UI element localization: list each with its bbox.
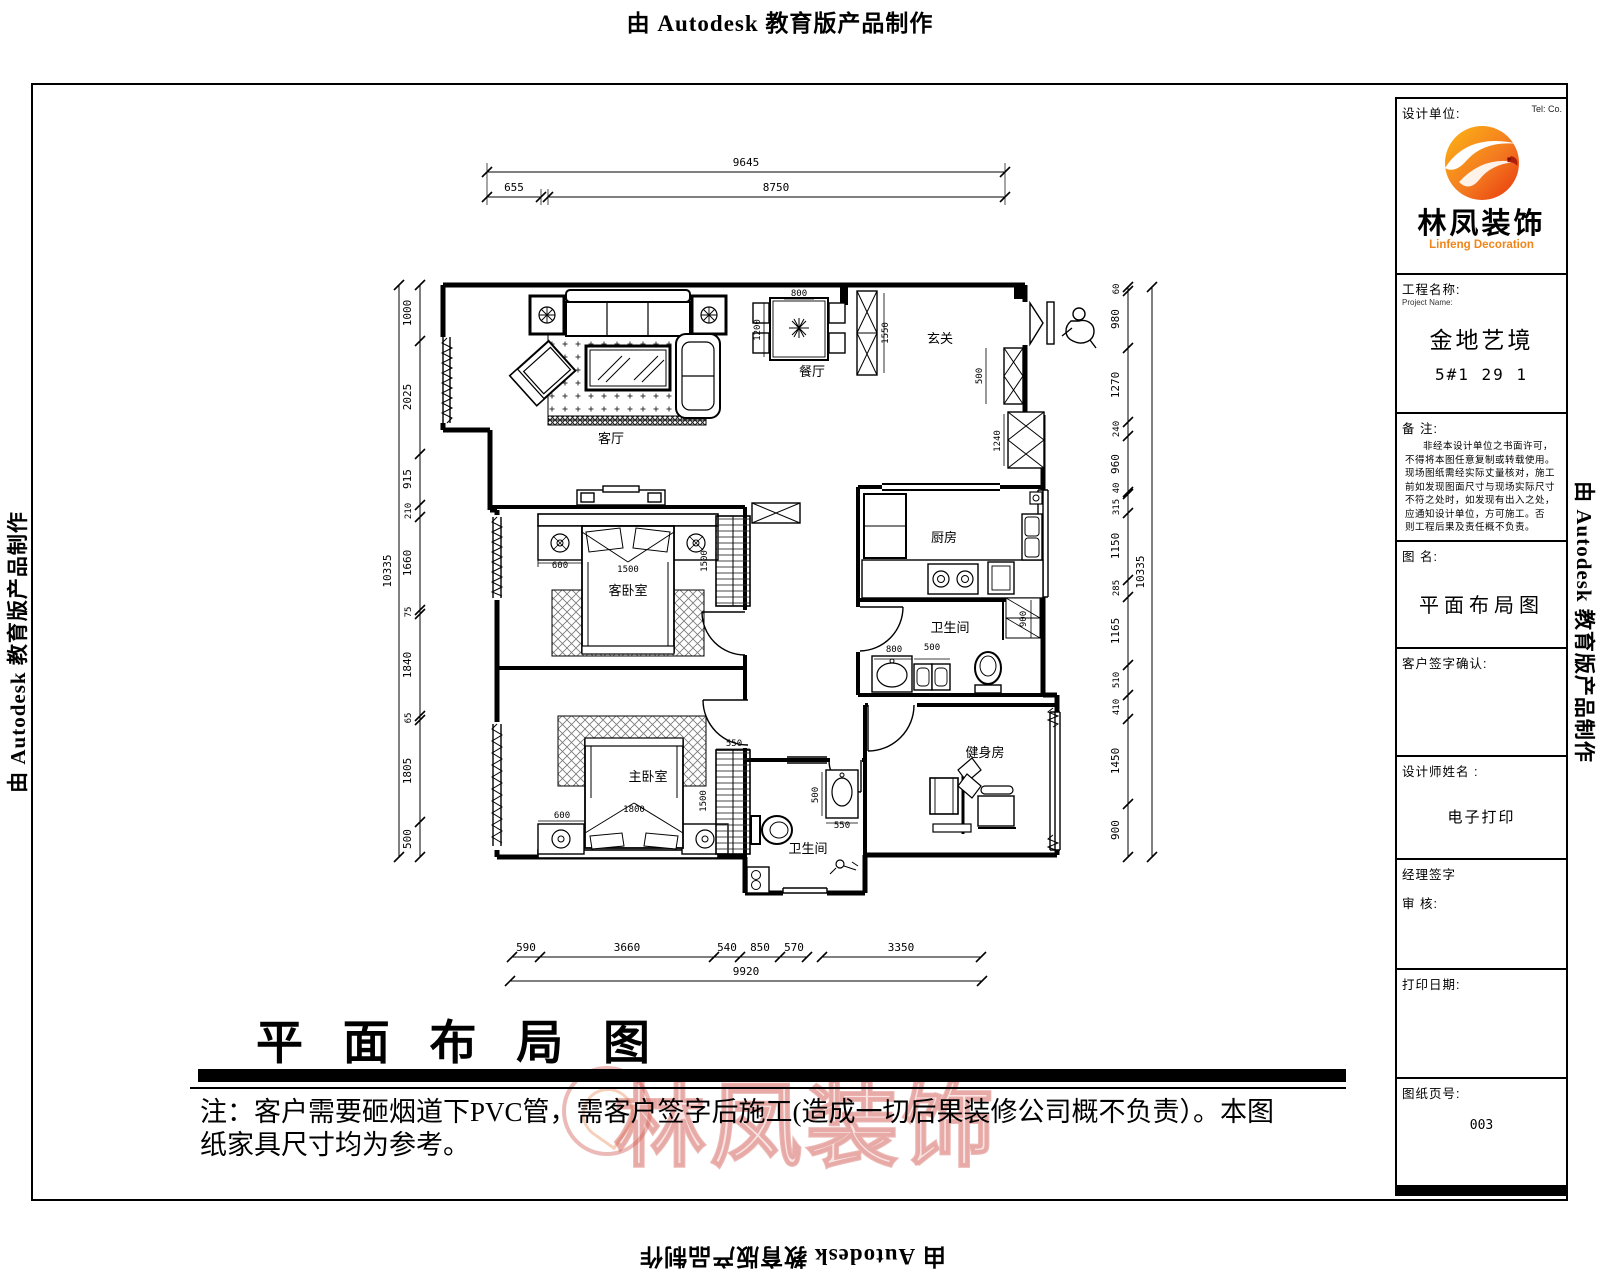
dim-bath1-c: 900 (1019, 611, 1029, 627)
sofa-back (566, 290, 690, 302)
dim-right: 960 (1109, 454, 1122, 474)
dim-bath2-b: 550 (834, 821, 850, 831)
gym-window (1050, 712, 1060, 850)
dim-right: 410 (1112, 699, 1122, 715)
guest-headboard (538, 514, 718, 526)
dim-left-total: 10335 (381, 554, 394, 587)
dining-chair (829, 303, 845, 323)
dim-right: 900 (1109, 820, 1122, 840)
hall-cabinet (1008, 412, 1044, 468)
dim-shoe-cabinet: 500 (975, 368, 985, 384)
pillow (633, 528, 670, 552)
dim-left: 500 (401, 829, 414, 849)
bath2-fixtures (747, 770, 858, 893)
dim-right: 1165 (1109, 618, 1122, 645)
dim-left: 1660 (401, 550, 414, 577)
master-nightstand-left (538, 824, 584, 854)
dim-bottom-total: 9920 (733, 965, 760, 978)
dim-left: 1805 (401, 758, 414, 785)
dim-bath1-a: 800 (886, 645, 902, 655)
cad-sheet: { "page": { "autodesk_banner": "由 Autode… (0, 0, 1600, 1280)
bath1-toilet-tank (975, 685, 1001, 693)
entry-door-leaf (1047, 302, 1054, 344)
dim-right: 315 (1112, 499, 1122, 515)
dim-right-total: 10335 (1134, 555, 1147, 588)
dim-guest-bed: 1500 (617, 565, 639, 575)
dim-bottom: 850 (750, 941, 770, 954)
console-cabinet (577, 486, 665, 505)
room-label-gym: 健身房 (965, 745, 1004, 760)
title-underline-thin (190, 1087, 1346, 1089)
dim-bottom: 570 (784, 941, 804, 954)
dim-top: 8750 (763, 181, 790, 194)
windows (443, 337, 1060, 893)
dim-master-bed: 1800 (623, 805, 645, 815)
dim-left: 1840 (401, 652, 414, 679)
gym-arm-pad (958, 774, 981, 798)
dim-guest-nightstand: 600 (552, 561, 568, 571)
room-label-bath1: 卫生间 (930, 620, 969, 635)
dim-left: 75 (404, 607, 414, 618)
sheet-title: 平 面 布 局 图 (256, 1004, 664, 1073)
room-label-kitchen: 厨房 (931, 530, 957, 545)
dim-bottom: 540 (717, 941, 737, 954)
bath1-toilet (975, 652, 1001, 684)
gym-bench-head (981, 786, 1013, 794)
guest-bed-bench (582, 646, 674, 654)
dining-furniture (753, 298, 845, 360)
gym-seat-back (930, 778, 958, 814)
column (1014, 287, 1023, 299)
dim-bottom: 3660 (614, 941, 641, 954)
column (840, 287, 848, 305)
pillow (590, 833, 624, 849)
coffee-table (586, 346, 670, 390)
dim-master-wardrobe-w: 550 (726, 739, 742, 749)
title-underline-bar (198, 1069, 1346, 1082)
entry-door-swing-icon (1030, 303, 1043, 344)
dim-right: 1450 (1109, 748, 1122, 775)
dim-top-total: 9645 (733, 156, 760, 169)
dim-dining-depth: 1200 (753, 319, 763, 341)
room-label-living: 客厅 (598, 431, 624, 446)
shoe-cabinet (1004, 348, 1023, 404)
dim-right: 60 (1112, 284, 1122, 295)
dim-bottom: 590 (516, 941, 536, 954)
dim-entry-cabinet: 1550 (881, 322, 891, 344)
room-label-entry: 玄关 (927, 331, 953, 346)
person-icon (1062, 308, 1096, 348)
dim-right: 1150 (1109, 533, 1122, 560)
dim-hall-cabinet: 1240 (993, 430, 1003, 452)
dim-right: 510 (1112, 672, 1122, 688)
room-label-bath2: 卫生间 (788, 841, 827, 856)
dim-right: 980 (1109, 309, 1122, 329)
master-bed (585, 740, 683, 848)
note-line-2: 纸家具尺寸均为参考。 (200, 1129, 1380, 1162)
room-label-master: 主卧室 (628, 769, 667, 784)
room-label-dining: 餐厅 (799, 364, 825, 379)
stove (928, 564, 978, 594)
dim-left: 915 (401, 469, 414, 489)
dim-left: 65 (404, 713, 414, 724)
dim-master-nightstand: 600 (554, 811, 570, 821)
sofa-seat (566, 302, 690, 336)
dim-bath2-a: 500 (811, 787, 821, 803)
guest-door (702, 612, 745, 655)
note-line-1: 注：客户需要砸烟道下PVC管，需客户签字后施工(造成一切后果装修公司概不负责）。… (200, 1096, 1380, 1129)
dim-master-wardrobe: 1500 (699, 790, 709, 812)
dim-right: 285 (1112, 580, 1122, 596)
dim-right: 240 (1112, 421, 1122, 437)
dim-top: 655 (504, 181, 524, 194)
shower-mixer-icon (836, 860, 844, 868)
dim-right: 1270 (1109, 372, 1122, 399)
gym-door (868, 705, 914, 751)
dim-left: 210 (404, 503, 414, 519)
gym-bench (978, 796, 1014, 826)
pillow (644, 833, 678, 849)
pillow (586, 528, 623, 552)
gym-equipment (930, 758, 1016, 834)
master-bed-foot (585, 738, 683, 746)
construction-note: 注：客户需要砸烟道下PVC管，需客户签字后施工(造成一切后果装修公司概不负责）。… (200, 1096, 1380, 1162)
room-label-guest: 客卧室 (608, 583, 647, 598)
dim-bottom: 3350 (888, 941, 915, 954)
gym-base (933, 824, 971, 832)
gas-meter (1030, 492, 1042, 504)
kitchen-furniture (862, 492, 1043, 598)
bath2-window (783, 888, 827, 893)
dining-chair (829, 333, 845, 353)
dim-guest-wardrobe: 1500 (700, 550, 710, 572)
dim-left: 1000 (401, 300, 414, 327)
dim-bath1-b: 500 (924, 643, 940, 653)
dim-dining-width: 800 (791, 289, 807, 299)
dim-right: 40 (1112, 483, 1122, 494)
dim-left: 2025 (401, 384, 414, 411)
bath2-toilet-tank (751, 816, 760, 844)
table-plant-icon (789, 318, 809, 338)
